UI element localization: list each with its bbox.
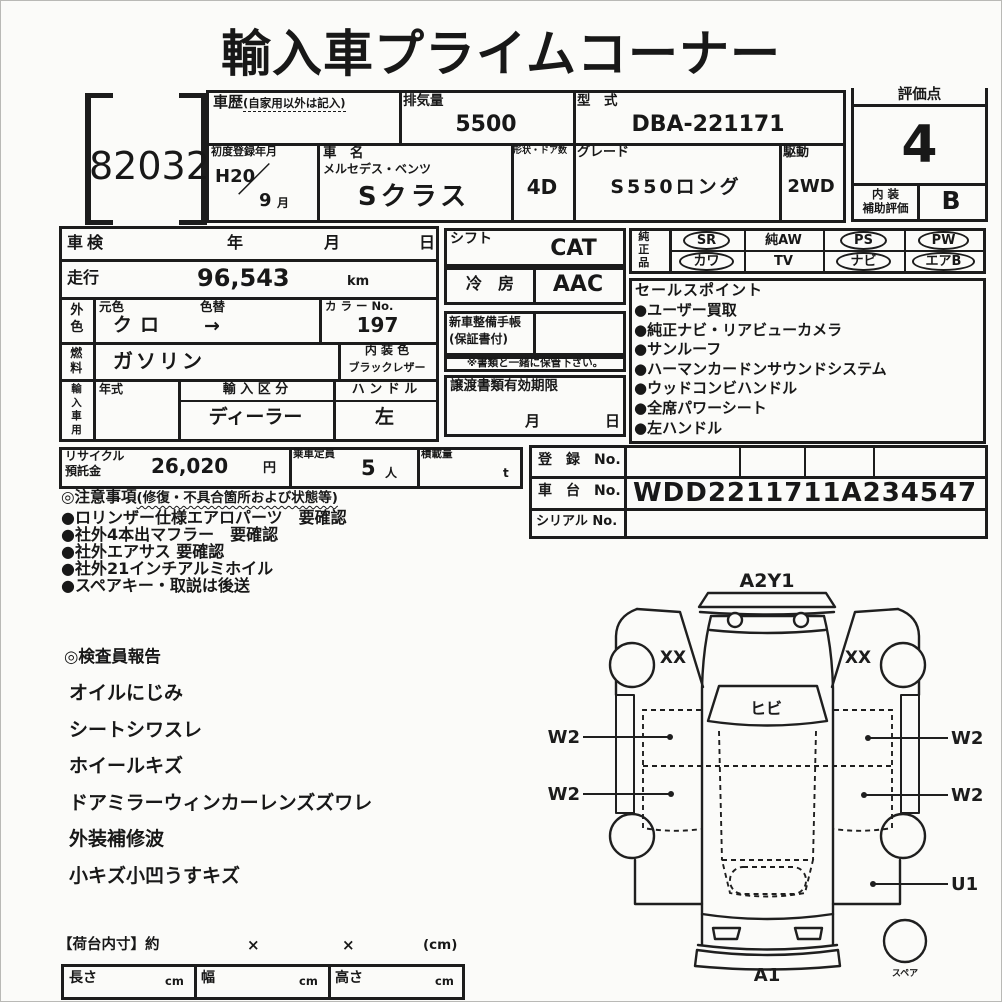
color-no-value: 197 — [319, 314, 436, 336]
inspector-item: 小キズ小凹うすキズ — [69, 858, 529, 895]
divider — [93, 297, 96, 439]
inspector-item: シートシワスレ — [69, 712, 529, 749]
w2-label: W2 — [548, 784, 580, 805]
divider — [194, 967, 197, 997]
notes-title: ◎注意事項(修復・不具合箇所および状態等) — [61, 489, 338, 506]
interior-grade-value: B — [917, 187, 985, 215]
import-class-value: ディーラー — [178, 407, 333, 428]
service-book-label-1: 新車整備手帳 — [449, 316, 521, 329]
rear-deck-line — [702, 914, 833, 919]
roof-dashed-left — [719, 731, 722, 860]
cargo-title: 【荷台内寸】約 — [58, 938, 160, 954]
car-name-label: 車 名 — [323, 146, 364, 161]
cargo-length-unit: cm — [165, 975, 184, 988]
divider — [804, 448, 806, 476]
w2-label: W2 — [951, 785, 983, 806]
oem-item-label: PS — [840, 231, 887, 250]
shaken-label: 車検 — [67, 234, 107, 252]
bullet-icon: ● — [61, 576, 75, 595]
roof-dashed-right — [813, 731, 816, 860]
inspector-item: ホイールキズ — [69, 748, 529, 785]
spare-label: スペア — [892, 968, 918, 979]
first-reg-month-unit: 月 — [277, 197, 289, 210]
rear-damage-label: A1 — [754, 965, 780, 986]
inspector-title: ◎検査員報告 — [64, 648, 161, 666]
first-reg-month: 9 — [259, 191, 272, 211]
recycle-unit: 円 — [263, 462, 276, 476]
bullet-icon: ● — [634, 360, 647, 378]
handle-label: ハ ン ド ル — [333, 383, 436, 397]
front-damage-label: A2Y1 — [740, 573, 795, 592]
color-no-label: カ ラ ー No. — [325, 300, 393, 313]
divider — [873, 448, 875, 476]
left-door-dashed — [643, 710, 701, 831]
taillight-right — [795, 928, 822, 939]
sales-point-text: サンルーフ — [647, 340, 721, 358]
u1-dot — [870, 881, 876, 887]
shift-value: CAT — [526, 237, 621, 261]
oem-item-label: ナビ — [836, 252, 890, 271]
year-model-label: 年式 — [99, 383, 123, 396]
oem-item-ps: PS — [823, 230, 904, 250]
oem-item-label: カワ — [679, 252, 733, 271]
car-maker: メルセデス・ベンツ — [323, 163, 431, 176]
shaken-month: 月 — [324, 234, 340, 252]
divider — [533, 314, 536, 353]
inspector-item: 外装補修波 — [69, 821, 529, 858]
cargo-table — [61, 964, 465, 1000]
sales-point: ●ユーザー買取 — [634, 301, 982, 321]
oem-item-label: 純AW — [765, 233, 802, 248]
notes-title-note: (修復・不具合箇所および状態等) — [137, 490, 338, 506]
grade-label: グレード — [577, 146, 629, 160]
bullet-icon: ● — [634, 419, 647, 437]
note-item: ●社外エアサス 要確認 — [61, 543, 531, 560]
washer-right — [794, 613, 808, 627]
capacity-value: 5 — [361, 457, 376, 480]
cargo-length-label: 長さ — [69, 971, 97, 986]
divider — [62, 259, 436, 262]
fuel-value: ガソリン — [113, 350, 205, 372]
oem-item-aw: 純AW — [744, 230, 823, 250]
bullet-icon: ● — [634, 340, 647, 358]
windshield-damage-label: ヒビ — [750, 699, 782, 718]
right-door-dashed — [834, 710, 892, 831]
cargo-times-1: × — [247, 937, 260, 954]
recycle-value: 26,020 — [151, 455, 228, 477]
w2-label: W2 — [548, 727, 580, 748]
recolor-label: 色替 — [200, 300, 225, 314]
rear-bumper-trim — [698, 945, 837, 950]
score-value: 4 — [854, 117, 985, 174]
oem-item-label: SR — [683, 231, 730, 250]
int-color-label: 内 装 色 — [338, 344, 436, 357]
oem-item-label: エアB — [912, 252, 976, 271]
sales-points-list: ●ユーザー買取 ●純正ナビ・リアビューカメラ ●サンルーフ ●ハーマンカードンサ… — [634, 301, 982, 438]
w2-label: W2 — [951, 728, 983, 749]
capacity-unit: 人 — [385, 467, 397, 480]
mileage-value: 96,543 — [197, 265, 290, 291]
note-item: ●ロリンザー仕様エアロパーツ 要確認 — [61, 509, 531, 526]
import-class-label: 輸 入 区 分 — [178, 383, 333, 397]
handle-value: 左 — [333, 407, 436, 428]
oem-item-kawa: カワ — [669, 251, 744, 271]
sales-point: ●全席パワーシート — [634, 399, 982, 419]
divider — [417, 450, 420, 486]
mileage-unit: km — [347, 275, 369, 289]
ac-label: 冷 房 — [447, 275, 533, 293]
sales-point: ●ウッドコンビハンドル — [634, 379, 982, 399]
history-label: 車歴(自家用以外は記入) — [213, 94, 346, 111]
sales-point-text: 純正ナビ・リアビューカメラ — [647, 321, 842, 339]
displacement-label: 排気量 — [403, 94, 444, 109]
divider — [328, 967, 331, 997]
inspector-list: オイルにじみ シートシワスレ ホイールキズ ドアミラーウィンカーレンズズワレ 外… — [69, 675, 529, 894]
load-unit: t — [503, 467, 509, 480]
w2-dot — [667, 734, 673, 740]
mileage-label: 走行 — [67, 269, 99, 287]
cargo-width-unit: cm — [299, 975, 318, 988]
car-model: Sクラス — [317, 183, 511, 212]
oem-label: 純正品 — [638, 230, 650, 269]
trunk-dashed — [730, 867, 806, 894]
recolor-arrow: → — [204, 316, 220, 337]
service-book-label-2: (保証書付) — [449, 333, 508, 346]
cargo-width-label: 幅 — [201, 971, 215, 986]
cargo-height-label: 高さ — [335, 971, 363, 986]
sales-point: ●左ハンドル — [634, 419, 982, 439]
note-item: ●社外21インチアルミホイル — [61, 560, 531, 577]
inspector-item: ドアミラーウィンカーレンズズワレ — [69, 785, 529, 822]
sales-point: ●純正ナビ・リアビューカメラ — [634, 321, 982, 341]
taillight-left — [713, 928, 740, 939]
capacity-label: 乗車定員 — [293, 449, 335, 461]
washer-left — [728, 613, 742, 627]
cargo-height-unit: cm — [435, 975, 454, 988]
reg-no-label: 登 録 No. — [538, 453, 621, 468]
bullet-icon: ● — [634, 379, 647, 397]
drive-value: 2WD — [779, 177, 843, 197]
wheel-front-right — [881, 643, 925, 687]
oem-item-label: PW — [918, 231, 970, 250]
oem-item-tv: TV — [744, 251, 823, 271]
lot-number: 82032 — [89, 146, 197, 188]
rear-window-dashed — [722, 860, 813, 897]
sales-points-title: セールスポイント — [635, 282, 763, 299]
import-use-label: 輸入車用 — [71, 383, 82, 437]
shaken-day: 日 — [419, 234, 435, 252]
drive-label: 駆動 — [783, 146, 809, 160]
oem-item-sr: SR — [669, 230, 744, 250]
keep-note: ※書類と一緒に保管下さい。 — [444, 358, 626, 370]
u1-label: U1 — [951, 874, 978, 895]
damage-diagram: A2Y1 XX XX ヒビ W2 W2 W2 W2 U1 A1 スペア — [533, 573, 1002, 989]
ac-value: AAC — [533, 273, 623, 297]
score-label: 評価点 — [851, 88, 988, 104]
wheel-front-left — [610, 643, 654, 687]
fuel-label: 燃料 — [70, 346, 83, 376]
sales-point-text: ユーザー買取 — [647, 301, 737, 319]
transfer-month: 月 — [525, 413, 540, 430]
sales-point-text: ハーマンカードンサウンドシステム — [647, 360, 887, 378]
model-code-label: 型 式 — [577, 94, 618, 109]
divider — [624, 448, 627, 536]
front-bumper — [699, 593, 835, 607]
sales-point: ●ハーマンカードンサウンドシステム — [634, 360, 982, 380]
recycle-label-1: リサイクル — [65, 450, 124, 463]
interior-grade-label-bottom: 補助評価 — [854, 202, 917, 215]
divider — [178, 400, 436, 402]
sales-point-text: 左ハンドル — [647, 419, 722, 437]
base-color-value: クロ — [113, 315, 167, 336]
note-text: スペアキー・取説は後送 — [75, 576, 250, 595]
wheel-rear-right — [881, 814, 925, 858]
oem-item-label: TV — [774, 254, 793, 269]
left-rear-edge — [635, 860, 702, 904]
displacement-value: 5500 — [399, 113, 573, 137]
history-label-note: (自家用以外は記入) — [243, 96, 346, 112]
transfer-day: 日 — [605, 413, 620, 430]
recycle-label-2: 預託金 — [65, 465, 101, 478]
bullet-icon: ● — [634, 399, 647, 417]
shift-label: シフト — [450, 232, 492, 247]
oem-item-navi: ナビ — [823, 251, 904, 271]
cowl-line — [710, 630, 825, 633]
wheel-rear-left — [610, 814, 654, 858]
cargo-times-2: × — [342, 937, 355, 954]
bullet-icon: ● — [634, 301, 647, 319]
notes-list: ●ロリンザー仕様エアロパーツ 要確認 ●社外4本出マフラー 要確認 ●社外エアサ… — [61, 509, 531, 594]
chassis-no-label: 車 台 No. — [538, 484, 621, 499]
fender-left-label: XX — [660, 648, 686, 668]
notes-title-main: ◎注意事項 — [61, 488, 137, 506]
model-code-value: DBA-221171 — [573, 113, 843, 137]
body-doors-label: 形状・ドア数 — [513, 147, 567, 157]
grade-value: S550ロング — [573, 177, 779, 198]
oem-item-airbag: エアB — [904, 251, 983, 271]
base-color-label: 元色 — [99, 300, 124, 314]
chassis-no-value: WDD2211711A234547 — [633, 479, 977, 508]
ext-color-label: 外色 — [70, 302, 84, 336]
body-doors-value: 4D — [511, 176, 573, 198]
interior-grade-label-top: 内 装 — [854, 188, 917, 201]
load-label: 積載量 — [421, 449, 453, 461]
auction-sheet: 輸入車プライムコーナー 82032 車歴(自家用以外は記入) 排気量 5500 … — [0, 0, 1002, 1002]
sales-point: ●サンルーフ — [634, 340, 982, 360]
front-bumper-trim — [700, 612, 834, 615]
cargo-unit-note: (cm) — [423, 938, 457, 953]
page-title: 輸入車プライムコーナー — [206, 27, 796, 82]
divider — [289, 450, 292, 486]
inspector-item: オイルにじみ — [69, 675, 529, 712]
int-color-value: ブラックレザー — [338, 362, 436, 374]
serial-no-label: シリアル No. — [536, 515, 617, 529]
divider — [532, 508, 985, 511]
note-item: ●スペアキー・取説は後送 — [61, 577, 531, 594]
divider — [739, 448, 741, 476]
w2-dot — [861, 792, 867, 798]
note-item: ●社外4本出マフラー 要確認 — [61, 526, 531, 543]
left-sill — [616, 695, 634, 813]
spare-wheel — [884, 920, 926, 962]
bullet-icon: ● — [634, 321, 647, 339]
transfer-doc-label: 譲渡書類有効期限 — [450, 379, 558, 394]
first-reg-label: 初度登録年月 — [211, 146, 277, 158]
shaken-year: 年 — [227, 234, 243, 252]
sales-point-text: ウッドコンビハンドル — [647, 379, 797, 397]
right-rear-edge — [833, 860, 900, 904]
sales-point-text: 全席パワーシート — [647, 399, 767, 417]
w2-dot — [668, 791, 674, 797]
oem-item-pw: PW — [904, 230, 983, 250]
w2-dot — [865, 735, 871, 741]
fender-right-label: XX — [845, 648, 871, 668]
history-label-main: 車歴 — [213, 93, 243, 111]
